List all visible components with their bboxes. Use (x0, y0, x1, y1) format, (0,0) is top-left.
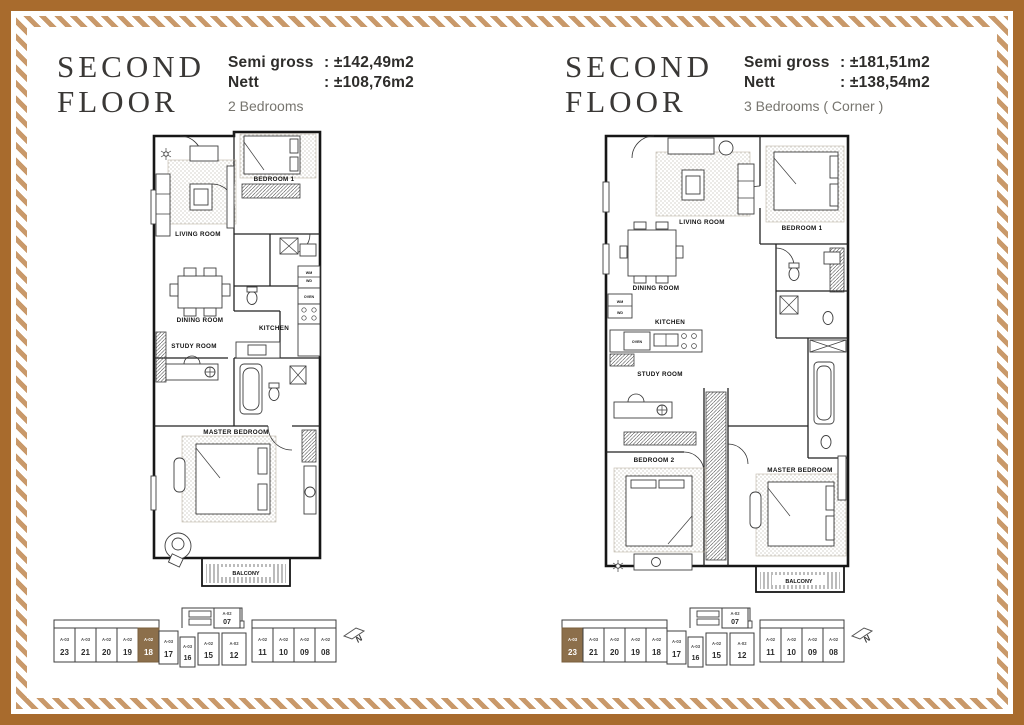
svg-text:A-02: A-02 (204, 641, 214, 646)
svg-text:07: 07 (223, 619, 231, 626)
left-specs: Semi gross : ±142,49m2 Nett : ±108,76m2 … (228, 54, 414, 114)
svg-text:23: 23 (568, 648, 577, 657)
svg-text:11: 11 (258, 648, 267, 657)
right-nett-value: : ±138,54m2 (840, 74, 930, 92)
master-bedroom-label: MASTER BEDROOM (767, 467, 832, 474)
svg-text:15: 15 (204, 651, 213, 660)
keyplan-unit: A-0317 (667, 631, 686, 664)
right-bedrooms-type: 3 Bedrooms ( Corner ) (744, 98, 930, 114)
svg-text:N: N (353, 632, 364, 644)
svg-text:21: 21 (589, 648, 598, 657)
svg-text:09: 09 (300, 648, 309, 657)
svg-text:A-03: A-03 (672, 639, 682, 644)
bedroom1-furniture (766, 146, 844, 292)
svg-text:A-03: A-03 (691, 644, 701, 649)
living-room-label: LIVING ROOM (679, 219, 725, 226)
left-title-line1: SECOND (57, 49, 205, 84)
right-title-line2: FLOOR (565, 84, 687, 119)
left-semi-gross-label: Semi gross (228, 54, 324, 72)
study-room-label: STUDY ROOM (171, 343, 217, 350)
svg-text:10: 10 (787, 648, 796, 657)
living-room-furniture (156, 146, 236, 236)
svg-text:17: 17 (164, 650, 173, 659)
svg-text:A-02: A-02 (102, 637, 112, 642)
keyplan-unit: A-0209 (294, 628, 315, 662)
keyplan-unit: A-0316 (180, 637, 195, 667)
svg-text:21: 21 (81, 648, 90, 657)
wardrobe-shaft (706, 392, 726, 560)
keyplan-unit: A-0212 (222, 633, 246, 665)
master-bath-fixtures (240, 364, 306, 414)
svg-text:A-02: A-02 (829, 637, 839, 642)
keyplan-unit: A-0323 (562, 628, 583, 662)
north-arrow-icon: N (852, 628, 873, 645)
svg-text:A-03: A-03 (164, 639, 174, 644)
svg-text:N: N (861, 632, 872, 644)
svg-text:17: 17 (672, 650, 681, 659)
kitchen-label: KITCHEN (655, 319, 685, 326)
keyplan-unit: A-0321 (583, 628, 604, 662)
svg-text:18: 18 (652, 648, 661, 657)
svg-text:A-02: A-02 (737, 641, 747, 646)
wd-label: WD (306, 279, 312, 283)
left-title-line2: FLOOR (57, 84, 179, 119)
keyplan-unit: A-0212 (730, 633, 754, 665)
right-specs: Semi gross : ±181,51m2 Nett : ±138,54m2 … (744, 54, 930, 114)
svg-text:A-02: A-02 (610, 637, 620, 642)
window (151, 190, 156, 224)
svg-text:A-02: A-02 (144, 637, 154, 642)
svg-text:A-02: A-02 (631, 637, 641, 642)
master-bedroom-furniture (165, 430, 316, 567)
master-door-arc (728, 444, 748, 464)
svg-text:08: 08 (829, 648, 838, 657)
svg-text:A-02: A-02 (321, 637, 331, 642)
svg-text:A-02: A-02 (730, 611, 740, 616)
keyplan-unit: A-0220 (604, 628, 625, 662)
svg-text:A-02: A-02 (123, 637, 133, 642)
floor-plan-2-bedrooms: LIVING ROOM BEDROOM 1 WM WD OVEN KITCHEN (140, 126, 340, 594)
svg-text:10: 10 (279, 648, 288, 657)
svg-text:A-02: A-02 (808, 637, 818, 642)
keyplan-unit: A-0220 (96, 628, 117, 662)
right-nett-label: Nett (744, 74, 840, 92)
keyplan-unit: A-0207 (722, 608, 748, 628)
svg-text:A-02: A-02 (652, 637, 662, 642)
svg-text:A-02: A-02 (766, 637, 776, 642)
right-floor-title: SECONDFLOOR (565, 50, 713, 119)
oven-label: OVEN (304, 295, 315, 299)
left-floor-title: SECONDFLOOR (57, 50, 205, 119)
wd-label: WD (617, 311, 623, 315)
dining-room-label: DINING ROOM (177, 317, 224, 324)
study-room-label: STUDY ROOM (637, 371, 683, 378)
svg-text:A-03: A-03 (81, 637, 91, 642)
svg-text:A-03: A-03 (568, 637, 578, 642)
keyplan-unit: A-0208 (315, 628, 336, 662)
wm-label: WM (306, 271, 312, 275)
svg-text:19: 19 (631, 648, 640, 657)
keyplan-unit: A-0218 (138, 628, 159, 662)
balcony-label: BALCONY (232, 571, 260, 577)
svg-text:A-03: A-03 (60, 637, 70, 642)
svg-text:15: 15 (712, 651, 721, 660)
keyplan-unit: A-0210 (781, 628, 802, 662)
wm-label: WM (617, 300, 623, 304)
svg-text:16: 16 (184, 655, 192, 662)
keyplan-unit: A-0211 (252, 628, 273, 662)
right-title-line1: SECOND (565, 49, 713, 84)
svg-text:09: 09 (808, 648, 817, 657)
balcony-label: BALCONY (785, 579, 813, 585)
svg-text:18: 18 (144, 648, 153, 657)
svg-text:07: 07 (731, 619, 739, 626)
kitchen-appliances (610, 330, 702, 352)
study-furniture (610, 354, 672, 418)
right-semi-gross-value: : ±181,51m2 (840, 54, 930, 72)
plant-icon (161, 148, 171, 160)
svg-text:A-02: A-02 (279, 637, 289, 642)
left-semi-gross-value: : ±142,49m2 (324, 54, 414, 72)
keyplan-unit: A-0209 (802, 628, 823, 662)
kitchen-label: KITCHEN (259, 325, 289, 332)
bedroom1-furniture (240, 134, 316, 198)
bedroom2-furniture (613, 432, 706, 572)
svg-text:12: 12 (230, 651, 239, 660)
left-bedrooms-type: 2 Bedrooms (228, 98, 414, 114)
bedroom1-label: BEDROOM 1 (254, 176, 295, 183)
window (151, 476, 156, 510)
keyplan-unit: A-0210 (273, 628, 294, 662)
living-room-furniture (656, 138, 754, 216)
svg-text:A-02: A-02 (300, 637, 310, 642)
left-nett-label: Nett (228, 74, 324, 92)
svg-text:23: 23 (60, 648, 69, 657)
svg-text:19: 19 (123, 648, 132, 657)
svg-text:A-03: A-03 (183, 644, 193, 649)
right-semi-gross-label: Semi gross (744, 54, 840, 72)
svg-text:A-03: A-03 (589, 637, 599, 642)
svg-text:A-02: A-02 (229, 641, 239, 646)
master-bedroom-label: MASTER BEDROOM (203, 429, 268, 436)
keyplan-unit: A-0316 (688, 637, 703, 667)
keyplan-unit: A-0207 (214, 608, 240, 628)
keyplan-unit: A-0211 (760, 628, 781, 662)
bedroom1-label: BEDROOM 1 (782, 225, 823, 232)
north-arrow-icon: N (344, 628, 365, 645)
oven-label: OVEN (632, 340, 643, 344)
window (603, 182, 609, 212)
keyplan-unit: A-0321 (75, 628, 96, 662)
study-furniture (156, 332, 218, 382)
keyplan-unit: A-0218 (646, 628, 667, 662)
left-nett-value: : ±108,76m2 (324, 74, 414, 92)
svg-text:A-02: A-02 (787, 637, 797, 642)
bedroom2-label: BEDROOM 2 (634, 457, 675, 464)
svg-text:20: 20 (610, 648, 619, 657)
dining-furniture (170, 268, 230, 316)
dining-room-label: DINING ROOM (633, 285, 680, 292)
svg-text:16: 16 (692, 655, 700, 662)
window (603, 244, 609, 274)
keyplan-unit: A-0208 (823, 628, 844, 662)
svg-text:A-02: A-02 (222, 611, 232, 616)
keyplan-unit: A-0323 (54, 628, 75, 662)
keyplan-unit: A-0215 (706, 633, 727, 665)
svg-text:08: 08 (321, 648, 330, 657)
keyplan-right: A-0207 A-0323 A-0321 A-0220 A-0219 A-021… (554, 604, 884, 688)
keyplan-unit: A-0219 (625, 628, 646, 662)
svg-text:A-02: A-02 (712, 641, 722, 646)
keyplan-unit: A-0219 (117, 628, 138, 662)
svg-text:20: 20 (102, 648, 111, 657)
entry-door-arc (632, 136, 654, 158)
keyplan-unit: A-0317 (159, 631, 178, 664)
keyplan-left: A-0207 A-0323 A-0321 A-0220 A-0219 A-021… (46, 604, 376, 688)
living-room-label: LIVING ROOM (175, 231, 221, 238)
keyplan-unit: A-0215 (198, 633, 219, 665)
svg-text:11: 11 (766, 648, 775, 657)
floor-plan-3-bedrooms-corner: LIVING ROOM BEDROOM 1 DINING ROOM WM WD … (598, 126, 854, 594)
dining-furniture (620, 222, 683, 283)
svg-text:A-02: A-02 (258, 637, 268, 642)
svg-text:12: 12 (738, 651, 747, 660)
